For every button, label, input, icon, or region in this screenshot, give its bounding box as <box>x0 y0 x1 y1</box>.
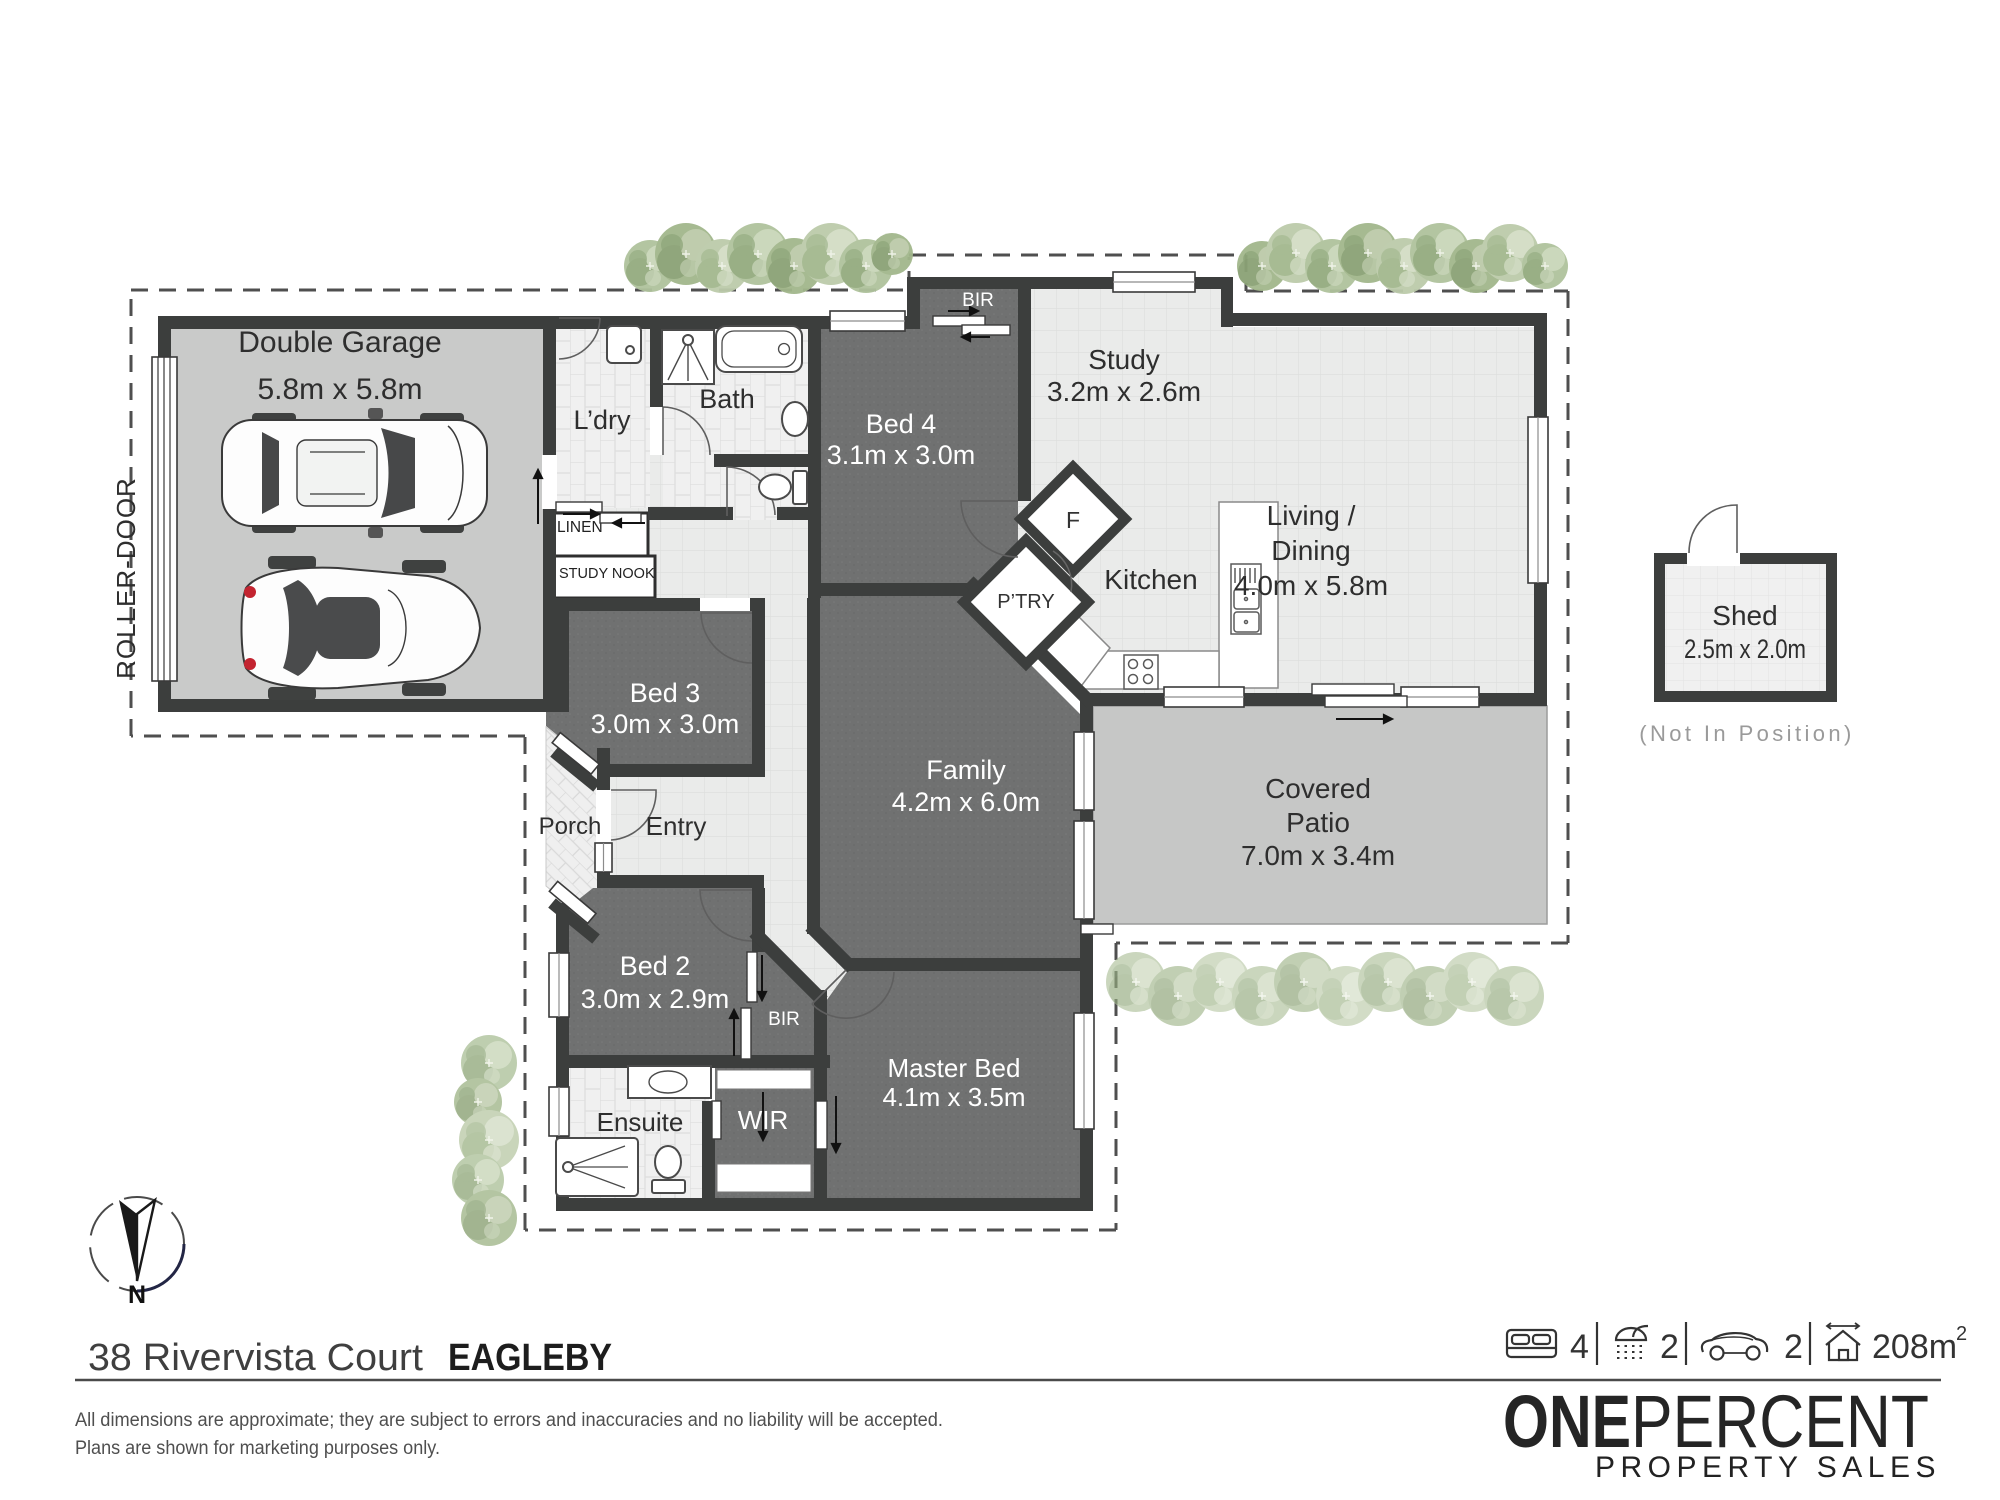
svg-text:Living /: Living / <box>1267 500 1356 531</box>
svg-text:3.2m x 2.6m: 3.2m x 2.6m <box>1047 376 1201 407</box>
svg-text:4.1m x 3.5m: 4.1m x 3.5m <box>882 1082 1025 1112</box>
svg-text:208m: 208m <box>1872 1328 1957 1366</box>
svg-text:Bed 3: Bed 3 <box>630 678 701 708</box>
svg-text:2: 2 <box>1660 1328 1679 1366</box>
svg-text:Double Garage: Double Garage <box>238 326 441 359</box>
svg-text:Ensuite: Ensuite <box>597 1107 684 1137</box>
svg-text:5.8m x 5.8m: 5.8m x 5.8m <box>257 373 422 406</box>
svg-text:N: N <box>128 1281 146 1309</box>
svg-text:Bed 2: Bed 2 <box>620 951 691 981</box>
svg-text:3.0m x 2.9m: 3.0m x 2.9m <box>581 984 730 1014</box>
svg-text:All dimensions are approximate: All dimensions are approximate; they are… <box>75 1410 943 1431</box>
svg-text:Plans are shown for marketing: Plans are shown for marketing purposes o… <box>75 1438 440 1459</box>
svg-text:PROPERTY SALES: PROPERTY SALES <box>1595 1451 1941 1484</box>
svg-text:3.1m x 3.0m: 3.1m x 3.0m <box>827 440 976 470</box>
svg-text:Patio: Patio <box>1286 807 1350 838</box>
svg-text:2: 2 <box>1784 1328 1803 1366</box>
svg-text:STUDY NOOK: STUDY NOOK <box>559 566 655 582</box>
svg-text:7.0m x 3.4m: 7.0m x 3.4m <box>1241 840 1395 871</box>
svg-text:P’TRY: P’TRY <box>997 591 1054 613</box>
svg-text:38 Rivervista Court: 38 Rivervista Court <box>88 1337 423 1379</box>
svg-text:L’dry: L’dry <box>573 405 631 435</box>
svg-text:Study: Study <box>1088 344 1160 375</box>
svg-text:Bath: Bath <box>699 384 755 414</box>
svg-text:4.0m x 5.8m: 4.0m x 5.8m <box>1234 570 1388 601</box>
svg-text:Kitchen: Kitchen <box>1104 564 1197 595</box>
svg-text:ROLLER-DOOR: ROLLER-DOOR <box>111 477 141 679</box>
svg-text:BIR: BIR <box>962 290 994 311</box>
svg-text:Entry: Entry <box>646 811 707 841</box>
svg-text:Bed 4: Bed 4 <box>866 409 937 439</box>
svg-text:Dining: Dining <box>1271 535 1350 566</box>
svg-text:WIR: WIR <box>738 1105 789 1135</box>
svg-text:4: 4 <box>1570 1328 1589 1366</box>
svg-text:Porch: Porch <box>539 813 602 840</box>
svg-text:EAGLEBY: EAGLEBY <box>448 1337 612 1379</box>
svg-text:4.2m x 6.0m: 4.2m x 6.0m <box>892 787 1041 817</box>
svg-text:2.5m x 2.0m: 2.5m x 2.0m <box>1684 634 1806 664</box>
svg-text:BIR: BIR <box>768 1009 800 1030</box>
svg-text:F: F <box>1066 507 1080 533</box>
svg-text:Family: Family <box>926 755 1006 785</box>
svg-text:Covered: Covered <box>1265 773 1371 804</box>
svg-text:(Not In Position): (Not In Position) <box>1639 721 1855 746</box>
svg-text:LINEN: LINEN <box>557 519 603 536</box>
svg-text:Shed: Shed <box>1712 600 1777 631</box>
svg-text:2: 2 <box>1956 1323 1967 1345</box>
svg-text:Master Bed: Master Bed <box>888 1053 1021 1083</box>
svg-text:3.0m x 3.0m: 3.0m x 3.0m <box>591 709 740 739</box>
